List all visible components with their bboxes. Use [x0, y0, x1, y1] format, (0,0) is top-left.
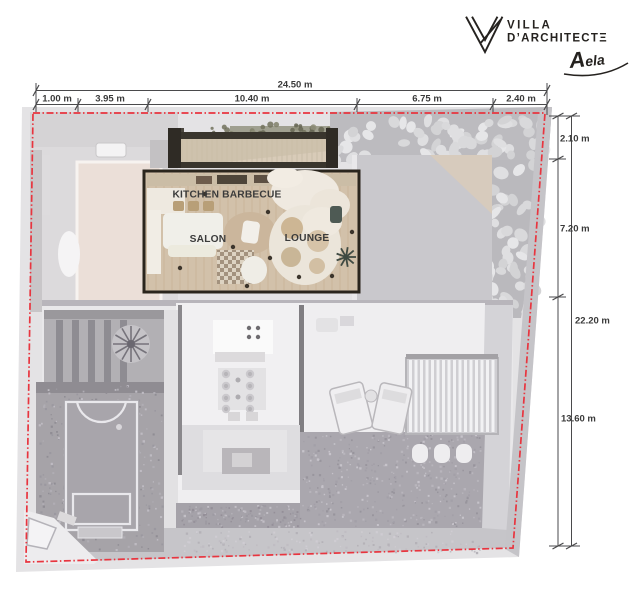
svg-text:Aela: Aela — [567, 44, 606, 73]
svg-text:2.40 m: 2.40 m — [506, 94, 536, 105]
svg-text:1.00 m: 1.00 m — [42, 94, 72, 105]
svg-text:24.50 m: 24.50 m — [278, 80, 313, 91]
svg-text:SALON: SALON — [190, 234, 227, 245]
svg-text:13.60 m: 13.60 m — [561, 414, 596, 425]
svg-text:3.95 m: 3.95 m — [95, 94, 125, 105]
svg-text:7.20 m: 7.20 m — [560, 224, 590, 235]
svg-text:KITCHEN BARBECUE: KITCHEN BARBECUE — [172, 190, 281, 201]
svg-text:2.10 m: 2.10 m — [560, 134, 590, 145]
svg-text:10.40 m: 10.40 m — [235, 94, 270, 105]
svg-text:22.20 m: 22.20 m — [575, 316, 610, 327]
svg-text:LOUNGE: LOUNGE — [285, 233, 330, 244]
svg-text:VILLA: VILLA — [507, 20, 552, 32]
svg-text:6.75 m: 6.75 m — [412, 94, 442, 105]
svg-text:D’ARCHITECTΞ: D’ARCHITECTΞ — [507, 33, 608, 45]
